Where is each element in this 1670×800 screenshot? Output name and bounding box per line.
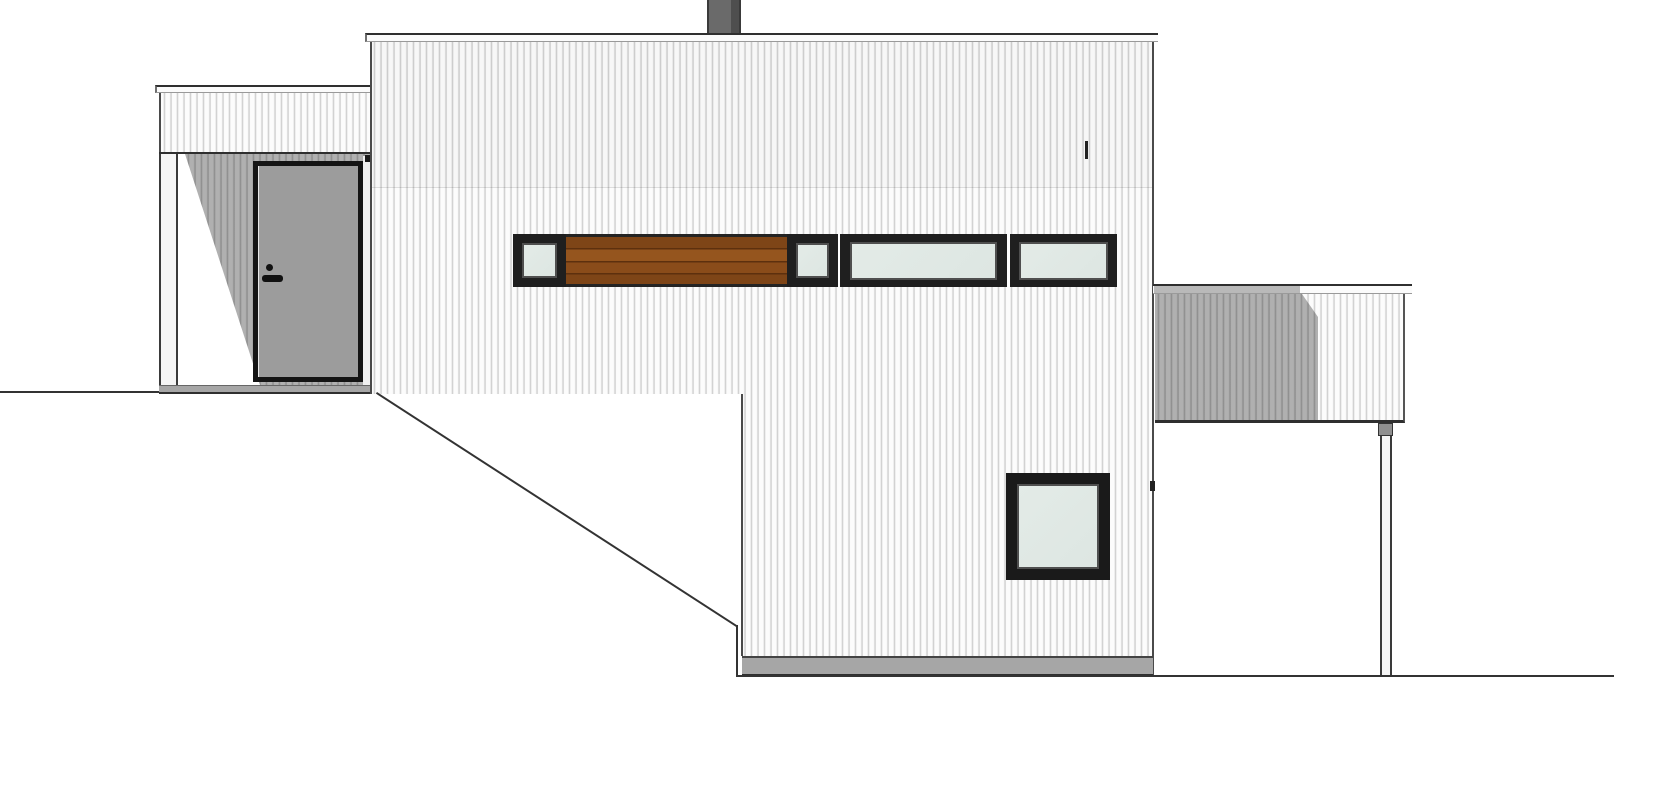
main-wall-edge-left	[370, 42, 372, 394]
main-wall-edge-right	[1152, 42, 1154, 676]
band-window-medium	[1010, 234, 1117, 287]
main-facade-seam	[371, 187, 1153, 188]
main-facade-upper-tint	[371, 42, 1153, 187]
band-window-wide	[840, 234, 1007, 287]
terrain-drop-line	[736, 625, 738, 677]
band-window-small-1	[513, 234, 566, 287]
terrace-railing	[1155, 294, 1405, 423]
terrace-cap-shadow	[1154, 286, 1300, 293]
band-window-medium-glass	[1019, 242, 1108, 280]
wall-fixture-lower	[1150, 481, 1155, 491]
ground-line-left	[0, 391, 159, 393]
entry-door-panel	[258, 166, 358, 377]
chimney-shade	[731, 0, 739, 33]
band-window-small-1-glass	[522, 243, 557, 278]
band-window-wide-glass	[850, 242, 997, 280]
square-window-glass	[1017, 484, 1099, 569]
elevation-drawing	[0, 0, 1670, 800]
door-handle	[262, 275, 283, 282]
terrace-post	[1380, 436, 1392, 676]
plinth-lower-story	[742, 656, 1153, 676]
entry-wing-fascia	[159, 93, 371, 153]
chimney	[707, 0, 741, 35]
terrace-post-cap	[1378, 423, 1393, 436]
lower-story-edge-left	[741, 394, 743, 656]
porch-corner-post	[159, 154, 178, 385]
main-roof-cap	[365, 33, 1158, 42]
ground-line-right	[736, 675, 1614, 677]
band-window-small-2-glass	[796, 243, 829, 278]
band-window-small-2	[787, 234, 838, 287]
entry-door	[253, 161, 363, 382]
terrace-railing-shadow	[1155, 294, 1403, 420]
wood-slat-panel	[566, 234, 787, 287]
wall-fixture-upper	[1085, 141, 1088, 159]
entry-wing-roof-cap	[155, 85, 371, 93]
door-knob	[266, 264, 273, 271]
square-window	[1006, 473, 1110, 580]
terrain-slope-line	[376, 392, 737, 627]
